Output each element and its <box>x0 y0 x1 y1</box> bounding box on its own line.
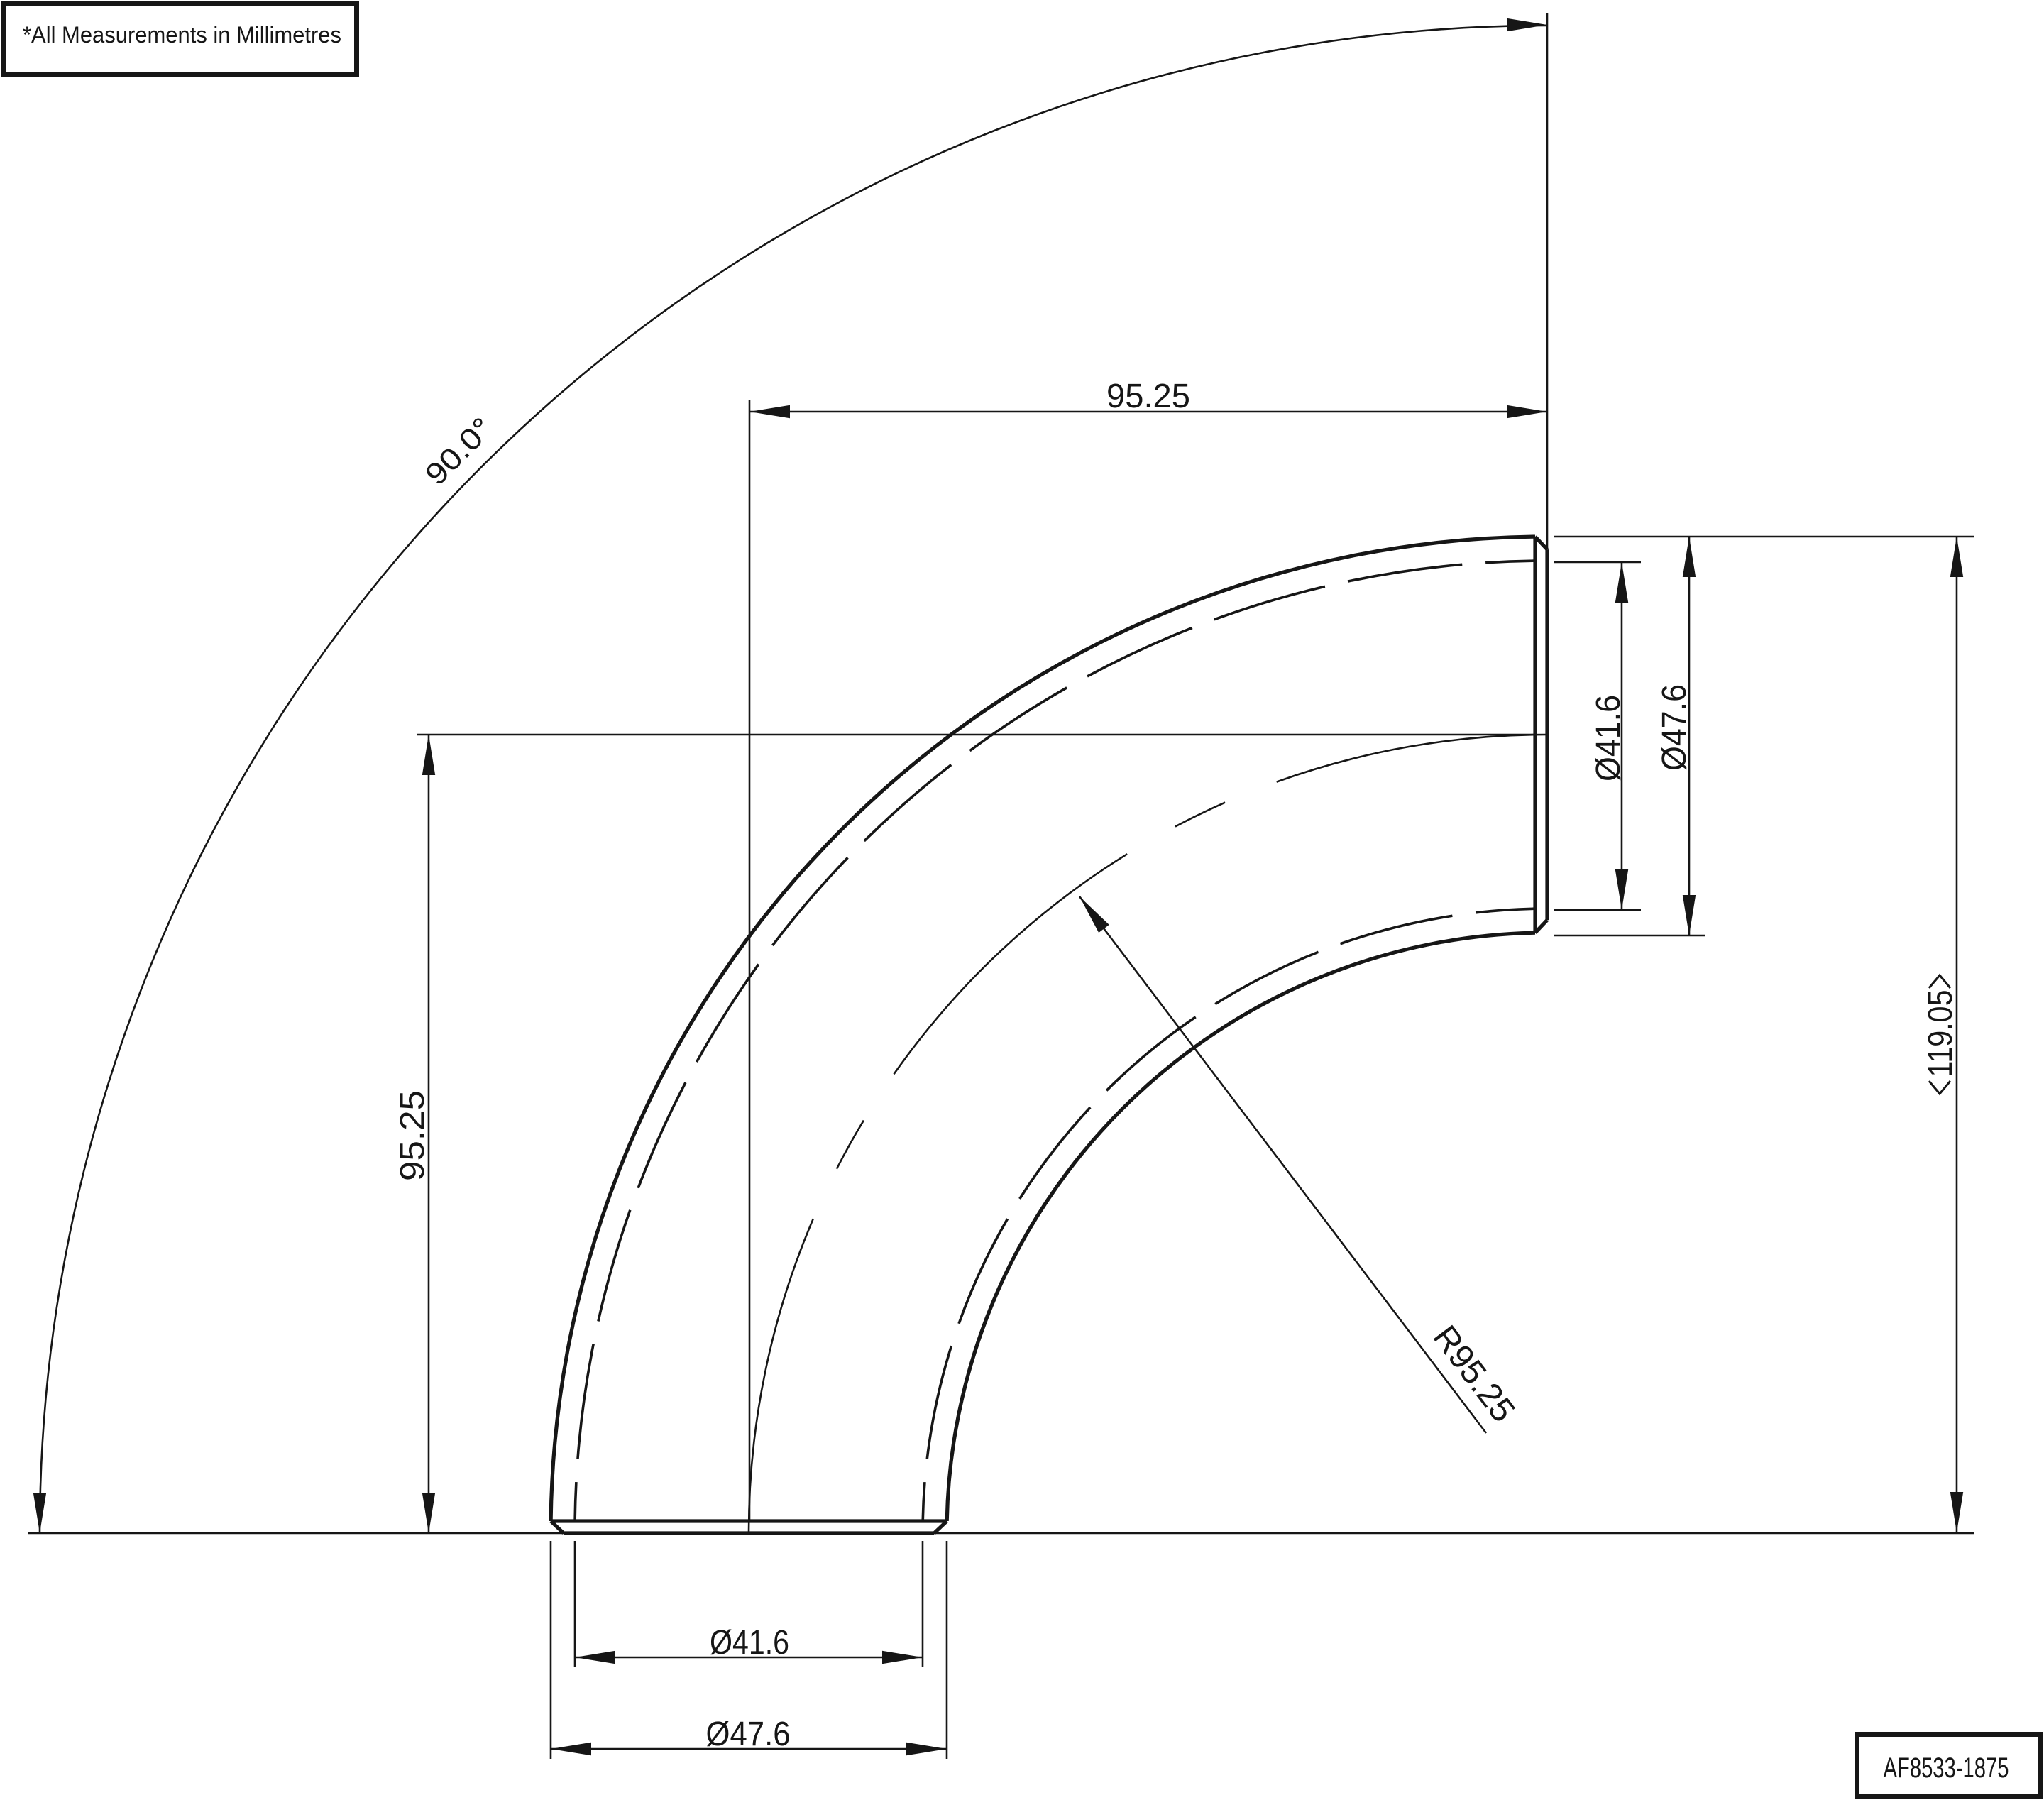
svg-text:95.25: 95.25 <box>394 1090 432 1181</box>
svg-text:119.05: 119.05 <box>1922 990 1960 1077</box>
svg-text:Ø47.6: Ø47.6 <box>706 1716 791 1753</box>
svg-text:*All Measurements in Millimetr: *All Measurements in Millimetres <box>23 22 341 48</box>
svg-text:Ø41.6: Ø41.6 <box>1590 695 1627 781</box>
svg-text:AF8533-1875: AF8533-1875 <box>1884 1752 2009 1784</box>
svg-text:Ø41.6: Ø41.6 <box>710 1624 789 1662</box>
svg-text:Ø47.6: Ø47.6 <box>1656 684 1693 771</box>
svg-text:95.25: 95.25 <box>1106 378 1190 415</box>
